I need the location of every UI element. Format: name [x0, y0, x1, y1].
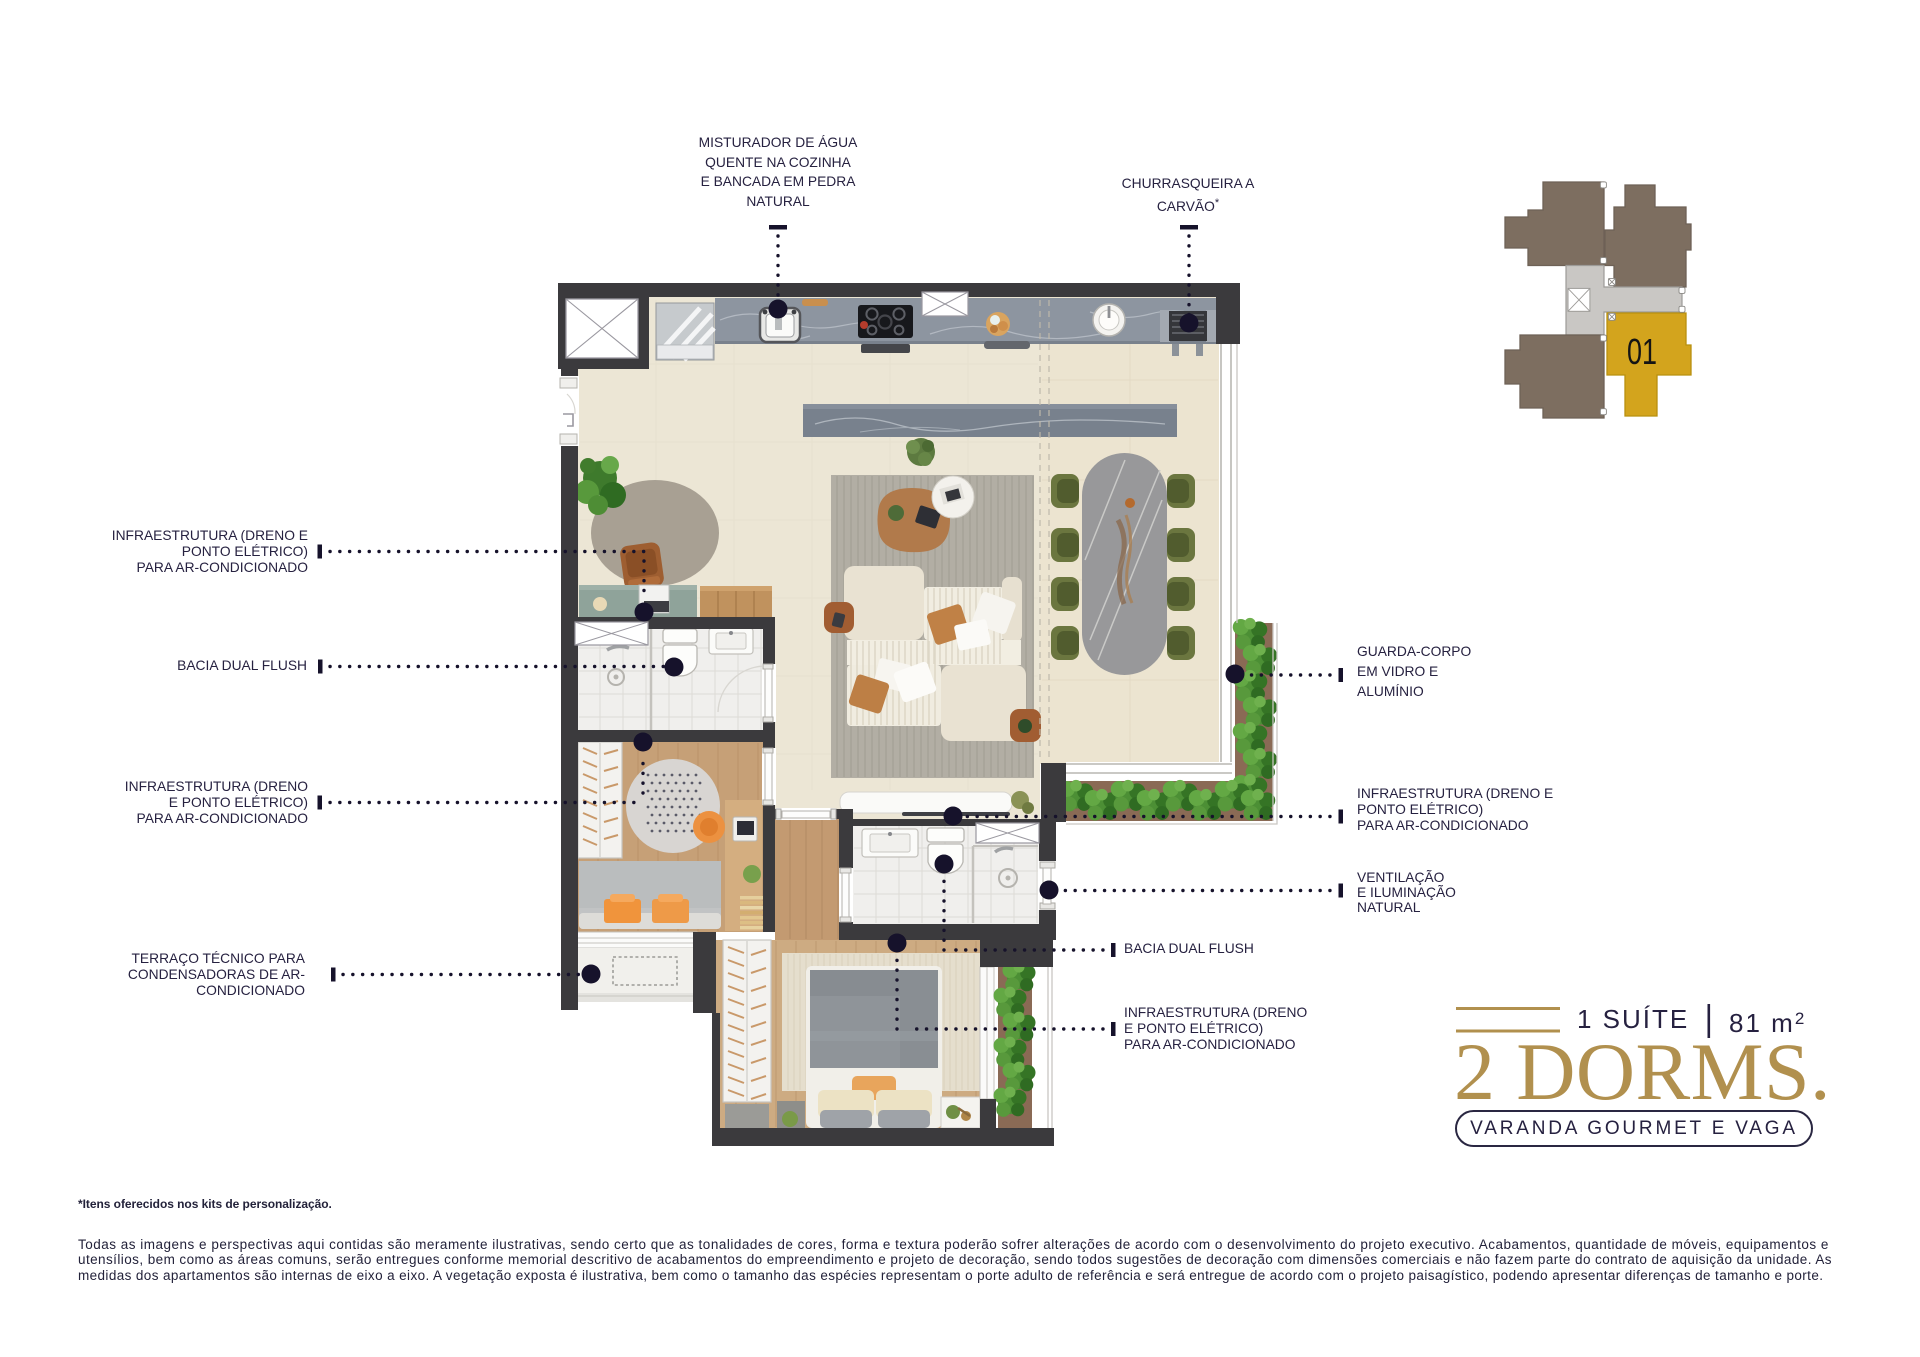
svg-text:01: 01 — [1627, 331, 1657, 372]
